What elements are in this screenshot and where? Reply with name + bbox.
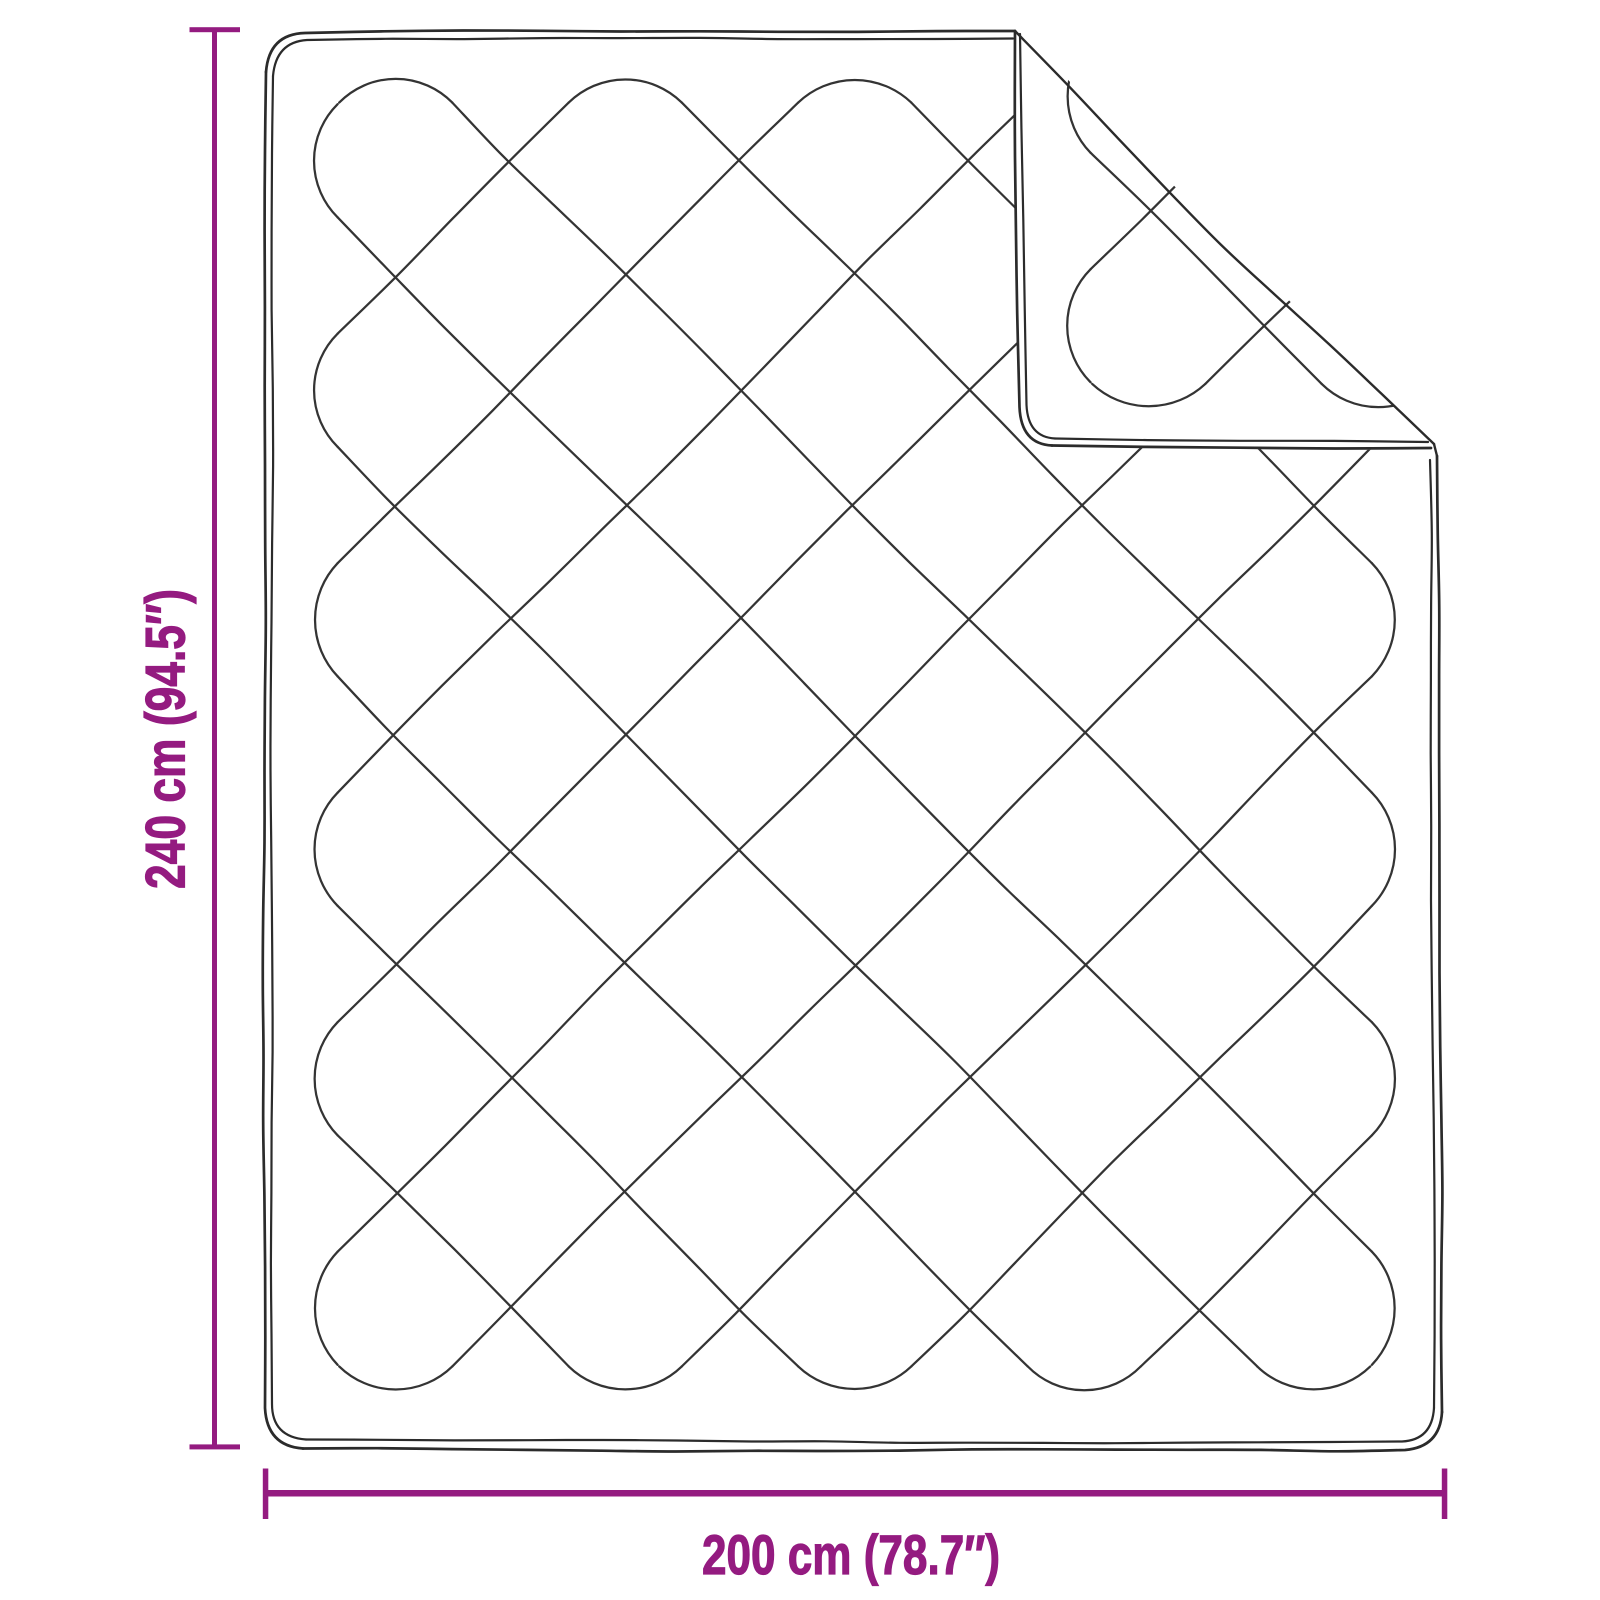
svg-text:200 cm (78.7″): 200 cm (78.7″)	[702, 1523, 1000, 1586]
svg-text:240 cm (94.5″): 240 cm (94.5″)	[134, 589, 197, 889]
